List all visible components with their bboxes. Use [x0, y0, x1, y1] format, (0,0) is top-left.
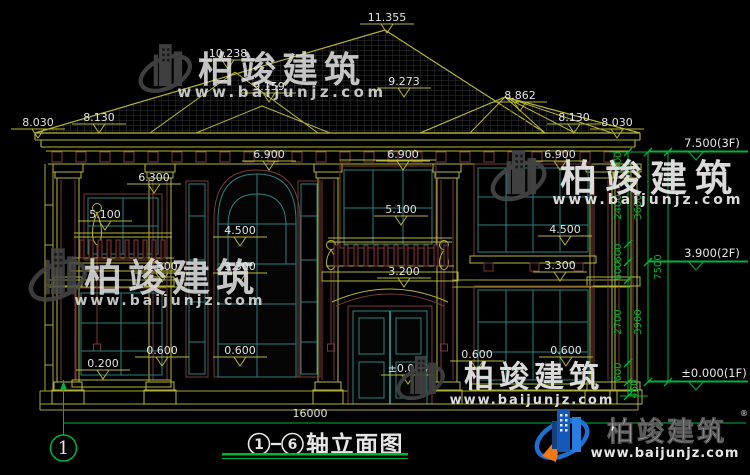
elevation-label: 11.355	[368, 11, 407, 24]
title-underline-thick	[222, 453, 408, 456]
elevation-label: 8.862	[504, 89, 536, 102]
elevation-label: 8.130	[558, 111, 590, 124]
chain-dim-label: 600	[613, 243, 624, 262]
watermark-brand: 柏竣建筑	[607, 416, 727, 448]
chain-dim-label: 450	[629, 379, 640, 398]
title-underline-thin	[222, 458, 408, 459]
watermark-url: www.baijunjz.com	[591, 446, 740, 461]
chain-dim-label: 7500	[653, 254, 664, 279]
baluster	[364, 245, 368, 266]
baluster	[384, 245, 388, 266]
elevation-drawing: 7.500(3F)3.900(2F)±0.000(1F) 60024006006…	[0, 0, 750, 475]
title-axis-start: 1	[254, 437, 264, 453]
elevation-label: 0.600	[224, 344, 256, 357]
baluster	[344, 245, 348, 266]
elevation-label: 3.200	[388, 265, 420, 278]
baluster	[394, 245, 398, 266]
elevation-label: 0.600	[550, 344, 582, 357]
baluster	[334, 245, 338, 266]
watermark-url: www.baijunjz.com	[450, 393, 615, 408]
elevation-label: 9.273	[388, 75, 420, 88]
baluster	[424, 245, 428, 266]
watermark-url: www.baijunjz.com	[75, 293, 266, 309]
chain-dim-label: 2700	[613, 309, 624, 334]
elevation-label: 5.100	[89, 208, 121, 221]
chain-dim-label: 600	[613, 362, 624, 381]
chain-dim-label: 3900	[633, 309, 644, 334]
watermark-url: www.baijunjz.com	[553, 192, 744, 208]
axis-number: 1	[58, 438, 69, 459]
elevation-label: 8.030	[601, 116, 633, 129]
elevation-label: 8.030	[22, 116, 54, 129]
chain-dim-label: 600	[613, 261, 624, 280]
baluster	[434, 245, 438, 266]
watermark-corner-logo: 柏竣建筑 www.baijunjz.com ®	[531, 409, 748, 466]
elevation-label: 6.300	[138, 171, 170, 184]
watermark-url: www.baijunjz.com	[177, 83, 386, 101]
registered-mark: ®	[740, 409, 748, 418]
title-axis-end: 6	[288, 437, 298, 453]
elevation-label: 6.900	[253, 148, 285, 161]
baluster	[354, 245, 358, 266]
cad-elevation-screenshot: 7.500(3F)3.900(2F)±0.000(1F) 60024006006…	[0, 0, 750, 475]
baluster	[404, 245, 408, 266]
elevation-label: 4.500	[549, 223, 581, 236]
elevation-label: 0.600	[146, 344, 178, 357]
baluster	[444, 245, 448, 266]
level-label: 7.500(3F)	[684, 136, 740, 150]
baluster	[374, 245, 378, 266]
elevation-label: 0.200	[87, 357, 119, 370]
elevation-label: 16000	[293, 407, 328, 420]
elevation-label: 3.300	[544, 259, 576, 272]
elevation-label: 4.500	[224, 224, 256, 237]
baluster	[414, 245, 418, 266]
elevation-label: 5.100	[385, 203, 417, 216]
level-label: ±0.000(1F)	[681, 366, 746, 380]
elevation-label: 8.130	[83, 111, 115, 124]
watermark-brand: 柏竣建筑	[464, 360, 604, 395]
level-label: 3.900(2F)	[684, 246, 740, 260]
elevation-label: 6.900	[387, 148, 419, 161]
